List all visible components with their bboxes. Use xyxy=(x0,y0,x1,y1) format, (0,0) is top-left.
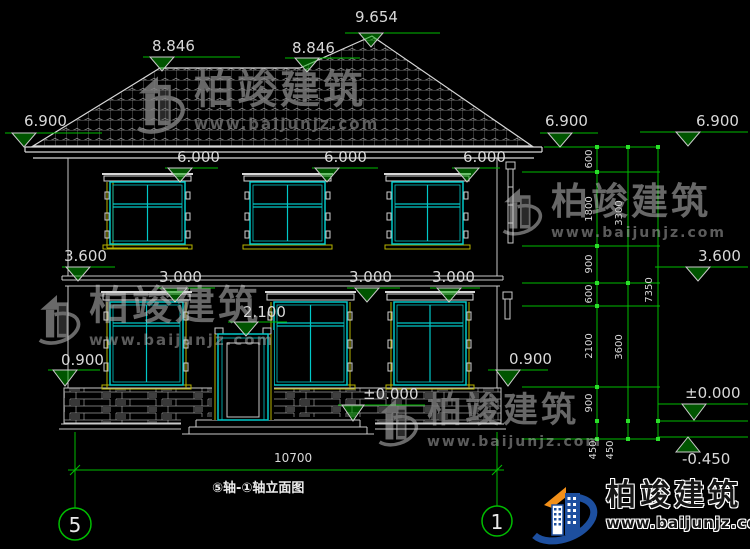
brand-logo-name: 柏竣建筑 xyxy=(606,481,750,511)
axis-bubble-1: 1 xyxy=(481,510,513,534)
dim-label-600-upper: 600 xyxy=(584,139,596,179)
watermark-brand: 柏竣建筑 xyxy=(427,394,602,429)
elevation-label-sill-left: 0.900 xyxy=(61,353,104,368)
elevation-label-win2-top-3: 6.000 xyxy=(463,150,506,165)
elevation-label-win1-top-2: 3.000 xyxy=(349,270,392,285)
dim-label-3600: 3600 xyxy=(614,327,626,367)
watermark-brand: 柏竣建筑 xyxy=(194,70,379,110)
dim-label-2100: 2100 xyxy=(584,326,596,366)
corner-corbel-lower xyxy=(503,292,512,319)
elevation-label-sill-right: 0.900 xyxy=(509,352,552,367)
window-2f-right xyxy=(384,174,471,249)
brand-logo: 柏竣建筑 www.baijunjz.com xyxy=(524,481,750,547)
elevation-label-eave-right: 6.900 xyxy=(545,114,588,129)
watermark-url: www.baijunjz.com xyxy=(551,225,726,241)
elevation-label-floor2-right: 3.600 xyxy=(698,249,741,264)
elevation-label-win1-top-3: 3.000 xyxy=(432,270,475,285)
elevation-label-win2-top-2: 6.000 xyxy=(324,150,367,165)
dim-label-600-lower: 600 xyxy=(584,274,596,314)
watermark-left: 柏竣建筑 www.baijunjz.com xyxy=(33,286,274,352)
axis-bubble-5: 5 xyxy=(59,513,91,537)
elevation-label-foundation: -0.450 xyxy=(682,452,730,467)
watermark-right: 柏竣建筑 www.baijunjz.com xyxy=(497,183,726,241)
watermark-logo-icon xyxy=(373,394,419,450)
dim-label-7350: 7350 xyxy=(644,270,656,310)
cad-elevation-sheet: 9.654 8.846 8.846 6.900 6.900 6.900 6.00… xyxy=(0,0,750,549)
watermark-bottom: 柏竣建筑 www.baijunjz.com xyxy=(373,394,602,450)
watermark-logo-icon xyxy=(497,183,543,239)
window-2f-middle xyxy=(242,174,333,249)
elevation-label-roof-peak: 9.654 xyxy=(355,10,398,25)
brand-logo-icon xyxy=(524,481,604,547)
watermark-brand: 柏竣建筑 xyxy=(551,183,726,220)
elevation-label-floor2-left: 3.600 xyxy=(64,249,107,264)
watermark-logo-icon xyxy=(33,286,81,352)
watermark-url: www.baijunjz.com xyxy=(427,434,602,450)
axis-bubbles xyxy=(59,506,512,540)
dim-label-total-width: 10700 xyxy=(274,452,312,464)
brand-logo-url: www.baijunjz.com xyxy=(606,514,750,532)
elevation-label-ridge-right: 8.846 xyxy=(292,41,335,56)
watermark-brand: 柏竣建筑 xyxy=(89,286,274,326)
window-2f-left xyxy=(102,174,193,249)
elevation-label-ridge-left: 8.846 xyxy=(152,39,195,54)
watermark-url: www.baijunjz.com xyxy=(194,115,379,133)
dim-label-450-b: 450 xyxy=(605,430,617,470)
window-1f-right xyxy=(385,292,475,389)
elevation-label-eave-left: 6.900 xyxy=(24,114,67,129)
watermark-logo-icon xyxy=(130,70,186,138)
watermark-roof: 柏竣建筑 www.baijunjz.com xyxy=(130,70,379,138)
elevation-label-ground-right: ±0.000 xyxy=(685,386,741,401)
watermark-url: www.baijunjz.com xyxy=(89,331,274,349)
drawing-title: ⑤轴-①轴立面图 xyxy=(212,477,304,496)
elevation-label-win2-top-1: 6.000 xyxy=(177,150,220,165)
elevation-label-eave-far-right: 6.900 xyxy=(696,114,739,129)
